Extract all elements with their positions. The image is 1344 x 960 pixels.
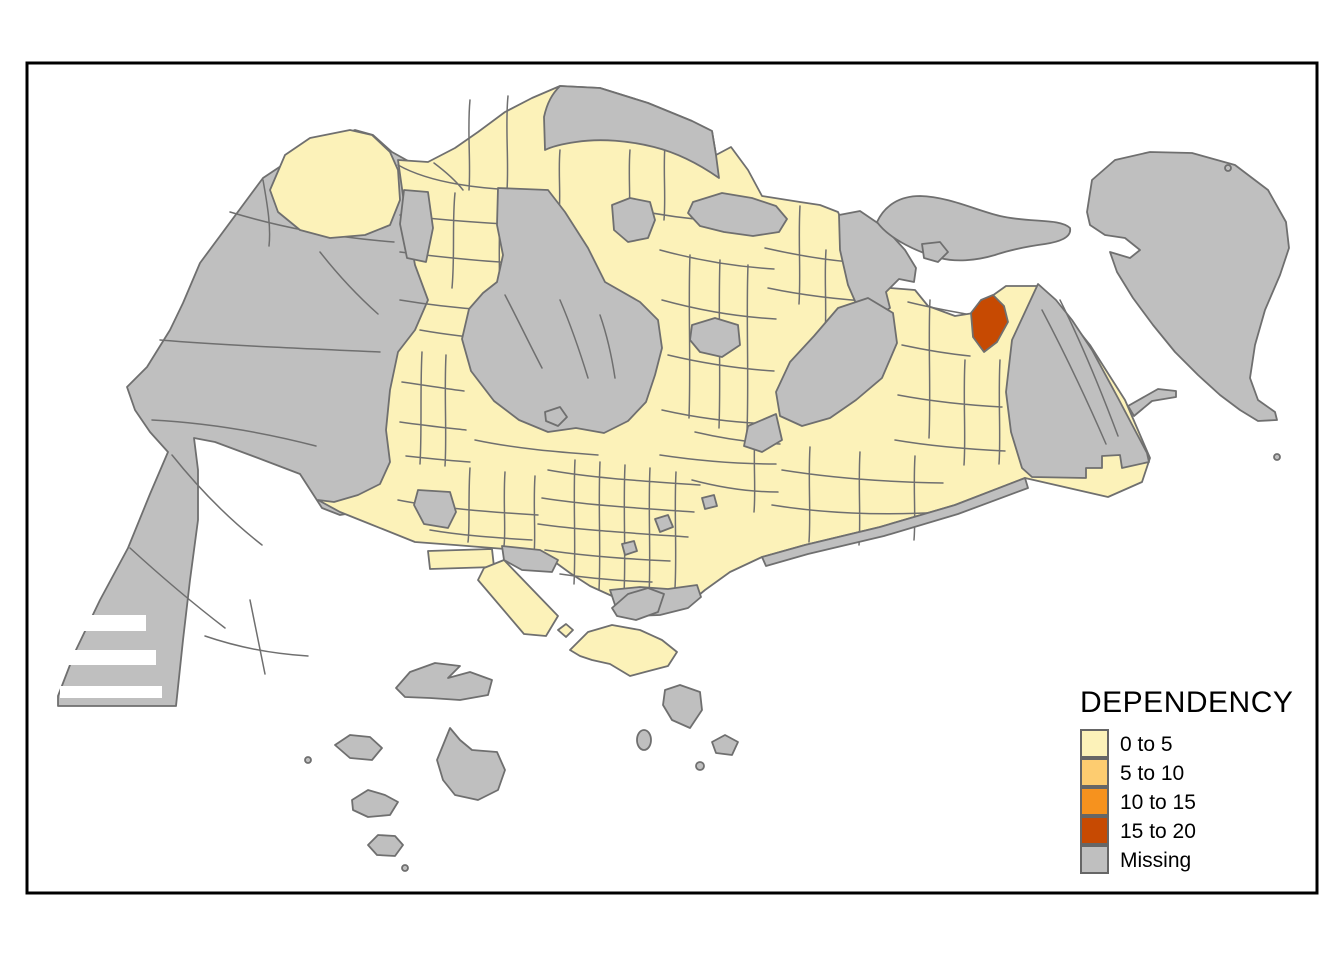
legend-items: 0 to 55 to 1010 to 1515 to 20Missing: [1080, 730, 1293, 875]
islet: [696, 762, 704, 770]
legend-item: 5 to 10: [1080, 759, 1293, 788]
legend-label: 5 to 10: [1109, 762, 1184, 786]
island-semakau: [437, 728, 505, 800]
legend-title: DEPENDENCY: [1080, 686, 1293, 719]
island: [712, 735, 738, 755]
sungei-kadut: [400, 190, 433, 262]
patch-small: [702, 495, 717, 509]
island: [368, 835, 403, 856]
bukom-cluster: [396, 663, 492, 700]
legend-item: 0 to 5: [1080, 730, 1293, 759]
islands-class-0-5: [558, 624, 677, 676]
legend-item: 10 to 15: [1080, 788, 1293, 817]
legend-swatch-class_0_5: [1080, 729, 1109, 758]
legend-label: 15 to 20: [1109, 820, 1196, 844]
legend-item: 15 to 20: [1080, 817, 1293, 846]
islet: [402, 865, 408, 871]
islet: [1225, 165, 1231, 171]
legend-item: Missing: [1080, 846, 1293, 875]
islet: [305, 757, 311, 763]
legend-label: Missing: [1109, 849, 1191, 873]
figure-canvas: DEPENDENCY 0 to 55 to 1010 to 1515 to 20…: [0, 0, 1344, 960]
island-st-johns: [663, 685, 702, 728]
sentosa: [570, 625, 677, 676]
legend-swatch-class_15_20: [1080, 816, 1109, 845]
tuas-slip: [60, 650, 156, 665]
tuas-slip: [60, 615, 146, 631]
islet: [1274, 454, 1280, 460]
pulau-tekong: [1087, 152, 1289, 421]
tuas-slip: [60, 686, 162, 698]
island: [335, 735, 382, 760]
legend-swatch-class_10_15: [1080, 787, 1109, 816]
changi-pier: [1128, 389, 1176, 416]
lim-chu-kang-zone: [270, 130, 400, 238]
legend-label: 0 to 5: [1109, 733, 1173, 757]
islet: [637, 730, 651, 750]
legend: DEPENDENCY 0 to 55 to 1010 to 1515 to 20…: [1080, 686, 1293, 875]
legend-label: 10 to 15: [1109, 791, 1196, 815]
island: [352, 790, 398, 817]
islet-yellow: [558, 624, 573, 637]
legend-swatch-class_5_10: [1080, 758, 1109, 787]
port-pier: [428, 549, 494, 569]
legend-swatch-missing: [1080, 845, 1109, 874]
